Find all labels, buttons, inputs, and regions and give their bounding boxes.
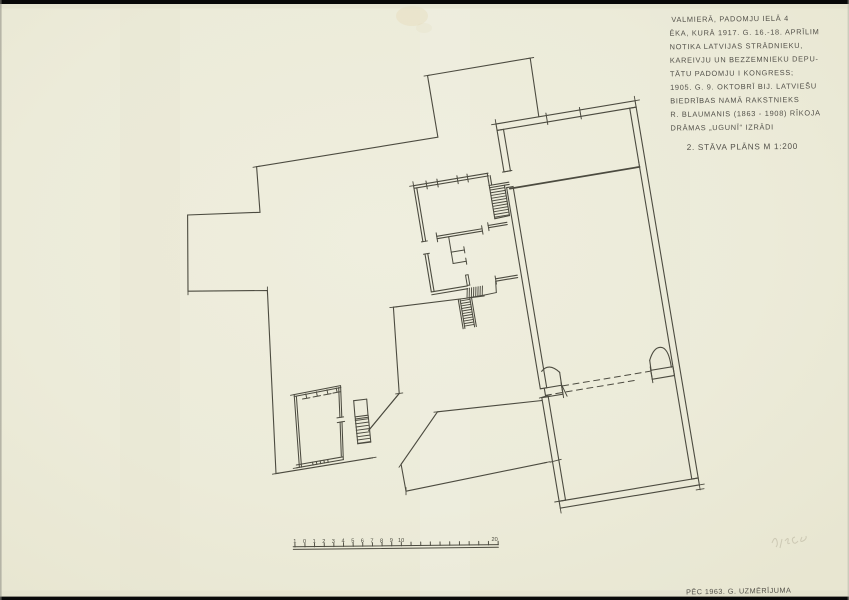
svg-text:PĒC 1963. G. UZMĒRĪJUMA: PĒC 1963. G. UZMĒRĪJUMA [686,586,791,597]
svg-text:R. BLAUMANIS (1863 - 1908) RĪK: R. BLAUMANIS (1863 - 1908) RĪKOJA [670,108,821,119]
svg-text:1: 1 [293,539,296,545]
svg-text:DRĀMAS „UGUNĪ“ IZRĀDI: DRĀMAS „UGUNĪ“ IZRĀDI [670,122,773,132]
svg-text:2: 2 [322,539,325,545]
svg-text:20: 20 [492,537,498,543]
svg-text:6: 6 [361,539,364,545]
svg-text:3: 3 [332,539,335,545]
svg-text:KAREIVJU UN BEZZEMNIEKU DEPU-: KAREIVJU UN BEZZEMNIEKU DEPU- [670,54,819,65]
svg-text:2. STĀVA PLĀNS M 1:200: 2. STĀVA PLĀNS M 1:200 [687,141,798,152]
svg-text:ĒKA, KURĀ 1917. G. 16.-18. APR: ĒKA, KURĀ 1917. G. 16.-18. APRĪLIM [669,27,819,38]
svg-text:5: 5 [351,539,354,545]
svg-text:1905. G. 9. OKTOBRĪ BIJ. LATVI: 1905. G. 9. OKTOBRĪ BIJ. LATVIEŠU [670,81,817,92]
svg-text:7: 7 [370,538,373,544]
svg-text:4: 4 [342,539,345,545]
svg-text:10: 10 [398,538,404,544]
svg-text:BIEDRĪBAS NAMĀ RAKSTNIEKS: BIEDRĪBAS NAMĀ RAKSTNIEKS [670,95,799,105]
svg-text:9: 9 [390,538,393,544]
svg-text:0: 0 [303,539,306,545]
svg-text:1: 1 [313,539,316,545]
svg-text:TĀTU PADOMJU I KONGRESS;: TĀTU PADOMJU I KONGRESS; [670,68,794,78]
svg-text:VALMIERĀ, PADOMJU IELĀ 4: VALMIERĀ, PADOMJU IELĀ 4 [671,14,789,24]
svg-text:NOTIKA LATVIJAS STRĀDNIEKU,: NOTIKA LATVIJAS STRĀDNIEKU, [670,41,803,51]
svg-text:8: 8 [380,538,383,544]
